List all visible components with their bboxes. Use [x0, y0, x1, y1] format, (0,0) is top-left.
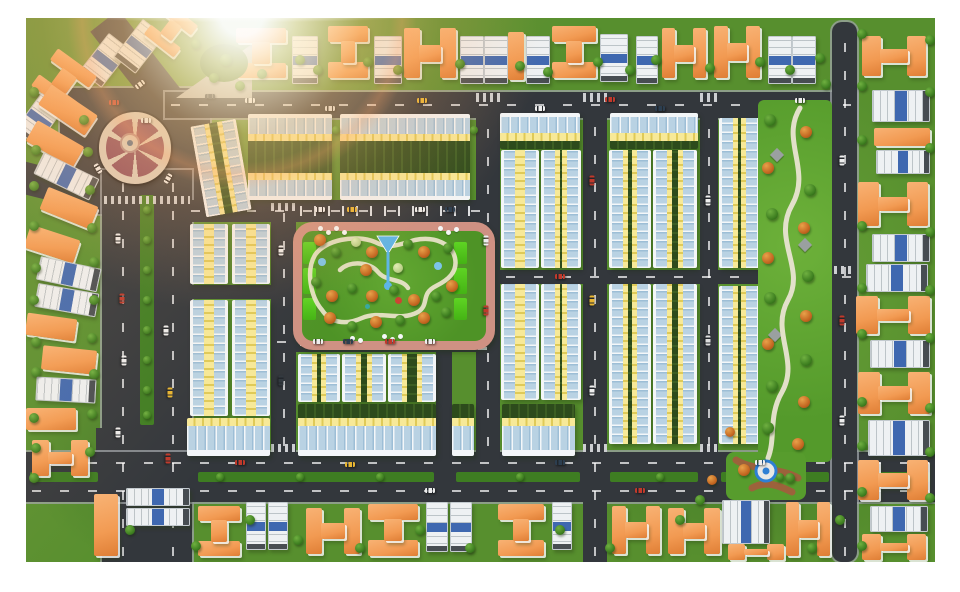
townhouse-strip	[407, 354, 417, 402]
park-lawn	[454, 242, 467, 264]
building-base	[769, 78, 791, 83]
orange-roof-part	[728, 544, 745, 560]
townhouse-strip	[694, 284, 697, 444]
tree	[85, 185, 95, 195]
blue-glass-stripe	[60, 379, 73, 402]
townhouse-strip	[267, 224, 270, 284]
building-orange-h	[856, 296, 930, 334]
townhouse-block	[340, 114, 470, 200]
tree	[800, 126, 812, 138]
orange-roof-part	[908, 296, 930, 334]
townhouse-block	[452, 404, 474, 456]
tree	[220, 54, 232, 66]
tree	[705, 63, 715, 73]
tree	[857, 487, 867, 497]
townhouse-strip	[610, 133, 698, 141]
car	[445, 207, 455, 212]
building-orange-i	[552, 26, 596, 78]
building-orange-h	[858, 460, 928, 500]
car	[840, 155, 845, 165]
building-wb	[792, 36, 814, 82]
tree	[625, 65, 635, 75]
tree	[83, 147, 93, 157]
building-orange-h	[858, 182, 928, 226]
building-base	[764, 501, 769, 543]
crosswalk	[271, 203, 296, 211]
building-white-blue	[126, 508, 190, 526]
tree	[311, 277, 321, 287]
tree	[925, 403, 935, 413]
tree	[31, 337, 41, 347]
car	[245, 98, 255, 103]
tree	[431, 291, 441, 301]
car	[116, 233, 121, 243]
building-wb	[426, 502, 446, 550]
car	[109, 100, 119, 105]
tree	[216, 473, 224, 481]
orange-roof-part	[384, 519, 402, 542]
townhouse-strip	[683, 284, 694, 444]
blue-glass-stripe	[152, 489, 164, 505]
lane-marking	[708, 122, 710, 446]
car	[840, 315, 845, 325]
townhouse-block	[342, 354, 386, 402]
orange-roof-part	[907, 36, 926, 76]
townhouse-strip	[722, 118, 733, 268]
roundabout-hub	[120, 133, 140, 153]
blue-glass-stripe	[152, 509, 164, 525]
car	[279, 375, 284, 385]
car	[590, 385, 595, 395]
townhouse-strip	[637, 150, 648, 268]
crosswalk	[700, 444, 718, 452]
townhouse-strip	[500, 117, 580, 133]
tree	[857, 221, 867, 231]
tree	[925, 333, 935, 343]
building-white-blue	[870, 506, 928, 532]
tree	[465, 543, 475, 553]
lane-marking	[844, 28, 846, 556]
orange-roof-part	[252, 42, 270, 64]
orange-roof-part	[419, 45, 442, 62]
building-white-blue	[792, 36, 816, 84]
tree	[395, 315, 405, 325]
orange-roof-part	[662, 28, 675, 78]
orange-roof-part	[71, 440, 88, 476]
tree	[29, 181, 39, 191]
orange-roof-part	[907, 534, 926, 560]
townhouse-block	[232, 300, 270, 416]
townhouse-strip	[722, 286, 733, 444]
building-white-blue	[426, 502, 448, 552]
building-base	[485, 78, 507, 83]
park-pergola-dot	[438, 226, 443, 231]
tree	[807, 543, 817, 553]
tree	[314, 234, 326, 246]
townhouse-block	[541, 284, 581, 400]
townhouse-strip	[187, 418, 270, 426]
orange-roof-part	[328, 26, 368, 42]
car	[205, 94, 215, 99]
tree	[257, 69, 267, 79]
townhouse-strip	[193, 224, 204, 284]
townhouse-strip	[612, 150, 623, 268]
building-base	[793, 78, 815, 83]
park-pergola-dot	[318, 226, 323, 231]
orange-roof-part	[880, 543, 908, 552]
townhouse-strip	[248, 118, 332, 134]
building-base	[183, 509, 189, 525]
orange-roof-part	[198, 541, 240, 556]
orange-roof-part	[440, 28, 456, 78]
orange-roof-part	[198, 506, 240, 521]
crosswalk	[476, 93, 500, 102]
orange-roof-part	[907, 460, 928, 500]
tree	[443, 243, 453, 253]
building-orange-tower	[508, 32, 524, 80]
building-white-blue	[872, 234, 930, 262]
townhouse-strip	[610, 117, 698, 133]
building-orange-i	[198, 506, 240, 556]
building-white-blue	[768, 36, 792, 84]
tree	[695, 495, 705, 505]
townhouse-strip	[656, 150, 667, 268]
townhouse-strip	[536, 284, 539, 400]
tree	[800, 354, 812, 366]
tree	[418, 246, 430, 258]
orange-roof-part	[625, 522, 646, 538]
townhouse-strip	[746, 286, 757, 444]
tree	[762, 252, 774, 264]
townhouse-strip	[187, 450, 270, 456]
townhouse-strip	[340, 196, 470, 200]
lane-marking	[594, 122, 596, 556]
townhouse-block	[232, 224, 270, 284]
car	[235, 460, 245, 465]
road	[185, 285, 296, 299]
tree	[925, 87, 935, 97]
tree	[87, 333, 97, 343]
tree	[802, 270, 814, 282]
building-wb	[768, 36, 790, 82]
tree	[366, 246, 378, 258]
townhouse-block	[719, 118, 760, 268]
building-wb	[872, 90, 928, 120]
tree	[29, 473, 39, 483]
orange-roof-part	[94, 494, 118, 556]
car	[840, 415, 845, 425]
townhouse-block	[501, 150, 539, 268]
orange-roof-part	[862, 36, 881, 76]
townhouse-strip	[656, 284, 667, 444]
blue-glass-stripe	[891, 265, 903, 291]
tree	[29, 295, 39, 305]
tree	[366, 290, 378, 302]
building-base	[637, 78, 657, 83]
building-wb	[872, 234, 928, 260]
park-pergola-dot	[358, 338, 363, 343]
townhouse-strip	[746, 118, 757, 268]
building-white-blue	[268, 502, 288, 550]
car	[484, 235, 489, 245]
tree	[143, 236, 151, 244]
townhouse-strip	[267, 300, 270, 416]
road-median	[198, 472, 434, 482]
blue-glass-stripe	[427, 523, 447, 532]
townhouse-strip	[500, 133, 580, 141]
orange-roof-part	[368, 504, 418, 520]
tree	[347, 321, 357, 331]
tree	[766, 208, 778, 220]
tree	[415, 525, 425, 535]
building-wb	[722, 500, 768, 542]
car	[706, 335, 711, 345]
townhouse-block	[502, 404, 575, 456]
car	[425, 488, 435, 493]
car	[755, 460, 765, 465]
orange-roof-part	[798, 520, 817, 538]
park-pergola-dot	[398, 334, 403, 339]
tree	[800, 310, 812, 322]
building-orange-tower	[94, 494, 118, 556]
car	[590, 175, 595, 185]
park-pond	[318, 258, 326, 266]
building-orange-h	[668, 508, 720, 554]
master-plan-aerial-render	[0, 0, 960, 592]
blue-glass-stripe	[893, 507, 904, 531]
tree	[29, 413, 39, 423]
car	[122, 355, 127, 365]
townhouse-block	[609, 284, 651, 444]
building-white-blue	[722, 500, 770, 544]
tree	[651, 55, 661, 65]
orange-roof-part	[404, 28, 420, 78]
car	[590, 295, 595, 305]
building-white-blue	[872, 90, 930, 122]
building-base	[923, 341, 929, 367]
building-base	[527, 78, 549, 83]
building-white-blue	[374, 36, 402, 84]
building-white-blue	[876, 150, 930, 174]
tree	[293, 535, 303, 545]
tree	[143, 411, 151, 419]
blue-glass-stripe	[741, 501, 750, 543]
building-orange-h	[404, 28, 456, 78]
car	[425, 339, 435, 344]
building-base	[247, 544, 265, 549]
car	[120, 293, 125, 303]
building-wb	[126, 488, 188, 504]
road-median	[610, 472, 698, 482]
lane-marking	[283, 206, 285, 446]
townhouse-strip	[694, 150, 697, 268]
tree	[376, 473, 384, 481]
orange-roof-part	[566, 41, 582, 64]
townhouse-strip	[452, 450, 474, 456]
car	[385, 339, 395, 344]
tree	[675, 515, 685, 525]
tree	[555, 525, 565, 535]
building-orange-h	[612, 506, 660, 554]
car	[535, 106, 545, 111]
car	[555, 460, 565, 465]
crosswalk	[271, 444, 296, 452]
building-white-blue	[600, 34, 628, 82]
orange-roof-part	[321, 523, 345, 539]
orange-roof-part	[552, 62, 596, 78]
townhouse-strip	[248, 196, 332, 200]
blue-glass-stripe	[895, 91, 906, 121]
tree	[351, 237, 361, 247]
orange-roof-part	[513, 519, 530, 542]
building-wb	[268, 502, 286, 548]
tree	[331, 247, 341, 257]
orange-roof-part	[683, 523, 706, 539]
park-lawn	[454, 298, 467, 320]
tree	[821, 79, 831, 89]
building-wb	[35, 376, 94, 401]
orange-roof-part	[907, 182, 928, 226]
townhouse-strip	[193, 300, 204, 416]
building-base	[553, 544, 571, 549]
tree	[87, 409, 97, 419]
park-pond	[365, 304, 370, 309]
townhouse-strip	[256, 224, 267, 284]
townhouse-strip	[235, 300, 246, 416]
townhouse-strip	[612, 284, 623, 444]
tree	[762, 422, 774, 434]
tree	[363, 57, 373, 67]
building-base	[601, 76, 627, 81]
townhouse-strip	[500, 141, 580, 149]
orange-roof-part	[328, 62, 368, 78]
park-pond	[395, 297, 402, 304]
townhouse-block	[190, 300, 228, 416]
park-pergola-dot	[326, 230, 331, 235]
tree	[785, 473, 795, 483]
tree	[515, 61, 525, 71]
tree	[766, 380, 778, 392]
tree	[143, 356, 151, 364]
tree	[360, 264, 372, 276]
orange-roof-part	[704, 508, 720, 554]
park-pond	[434, 262, 442, 270]
building-wb	[484, 36, 506, 82]
townhouse-strip	[248, 180, 332, 196]
townhouse-strip	[383, 354, 386, 402]
tree	[656, 473, 664, 481]
townhouse-block	[609, 150, 651, 268]
tree	[925, 447, 935, 457]
car	[795, 98, 805, 103]
lane-marking	[122, 176, 124, 556]
building-white-blue	[868, 420, 930, 456]
orange-roof-part	[341, 41, 355, 64]
orange-roof-part	[767, 544, 784, 560]
townhouse-strip	[504, 284, 515, 400]
tree	[347, 283, 357, 293]
park-pergola-dot	[334, 226, 339, 231]
road	[436, 352, 452, 452]
tree	[89, 257, 99, 267]
tree	[835, 515, 845, 525]
orange-roof-part	[878, 197, 909, 212]
tree	[593, 57, 603, 67]
building-orange-h	[306, 508, 360, 554]
car	[166, 453, 171, 463]
townhouse-strip	[391, 354, 402, 402]
tree	[326, 290, 338, 302]
building-wb	[866, 264, 926, 290]
car	[325, 106, 335, 111]
townhouse-strip	[225, 300, 228, 416]
tree	[29, 221, 39, 231]
tree	[31, 443, 41, 453]
car	[313, 339, 323, 344]
building-orange-i	[368, 504, 418, 556]
crosswalk	[583, 444, 607, 452]
building-orange-h	[662, 28, 706, 78]
townhouse-block	[610, 113, 698, 149]
townhouse-strip	[187, 426, 270, 450]
lane-marking	[171, 104, 851, 106]
orange-roof-part	[498, 504, 544, 520]
blue-glass-stripe	[269, 522, 287, 530]
townhouse-block	[541, 150, 581, 268]
orange-roof-part	[744, 549, 769, 554]
townhouse-strip	[610, 141, 698, 149]
tree	[792, 438, 804, 450]
tree	[857, 81, 867, 91]
tree	[785, 65, 795, 75]
tree	[804, 184, 816, 196]
blue-glass-stripe	[601, 54, 627, 62]
townhouse-strip	[422, 354, 433, 402]
tree	[776, 473, 784, 481]
car	[415, 207, 425, 212]
tree	[143, 296, 151, 304]
orange-roof-part	[236, 28, 286, 43]
blue-glass-stripe	[894, 341, 906, 367]
townhouse-strip	[337, 354, 340, 402]
tree	[31, 145, 41, 155]
blue-glass-stripe	[485, 56, 507, 64]
orange-roof-part	[306, 508, 322, 554]
townhouse-strip	[502, 404, 575, 418]
building-wb	[246, 502, 264, 548]
tree	[31, 263, 41, 273]
car	[635, 488, 645, 493]
orange-roof-part	[880, 49, 908, 63]
townhouse-strip	[340, 141, 470, 173]
tree	[296, 473, 304, 481]
tree	[403, 239, 413, 249]
park-lawn	[303, 242, 316, 264]
car	[706, 195, 711, 205]
townhouse-strip	[298, 404, 436, 418]
building-white-blue	[126, 488, 190, 506]
orange-roof-part	[817, 502, 830, 556]
tree	[857, 441, 867, 451]
tree	[29, 87, 39, 97]
townhouse-strip	[214, 300, 225, 416]
building-wb	[374, 36, 400, 82]
townhouse-strip	[452, 418, 474, 426]
tree	[925, 143, 935, 153]
townhouse-block	[298, 404, 436, 456]
building-orange-h	[728, 544, 784, 560]
tree	[857, 397, 867, 407]
